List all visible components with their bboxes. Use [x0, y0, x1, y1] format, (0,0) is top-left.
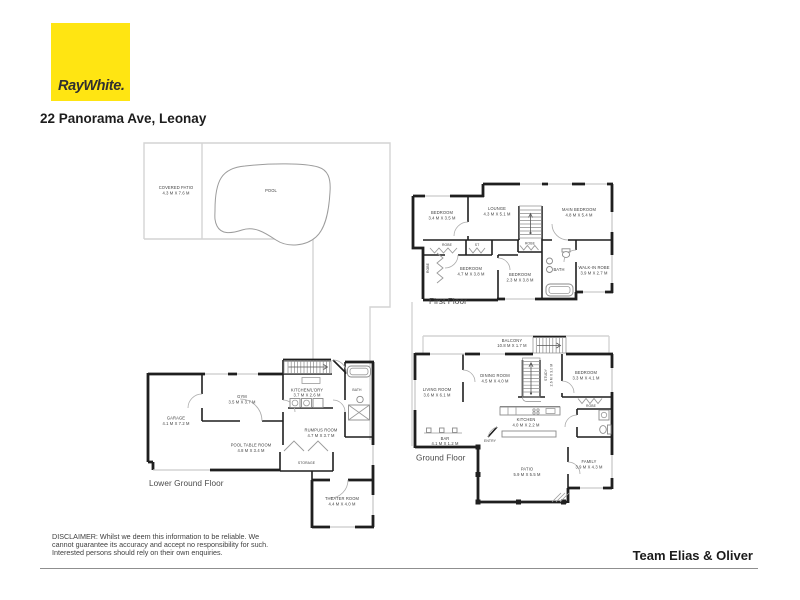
- storage-door-icons: [284, 441, 328, 451]
- staircase-ground-floor: [523, 358, 542, 402]
- room-dims-dining: 4.5 M X 4.0 M: [481, 379, 509, 384]
- basin-icons: [547, 258, 553, 273]
- first-floor-outer-walls: [413, 184, 613, 300]
- team-name: Team Elias & Oliver: [633, 548, 753, 563]
- room-label-dining: DINING ROOM: [480, 373, 510, 378]
- powder-room-icons: [599, 410, 611, 434]
- room-label-walk-in-robe: WALK-IN ROBE: [578, 265, 609, 270]
- disclaimer-text: DISCLAIMER: Whilst we deem this informat…: [52, 533, 332, 558]
- room-label-bedroom-mid: BEDROOM: [460, 266, 482, 271]
- room-label-bedroom-top: BEDROOM: [431, 210, 453, 215]
- room-label-kitchen: KITCHEN: [517, 417, 536, 422]
- room-dims-bedroom-gf: 3.3 M X 4.1 M: [572, 376, 600, 381]
- room-dims-pool-table: 4.8 M X 3.4 M: [237, 448, 265, 453]
- room-dims-study: 2.6 M X 3.0 M: [550, 364, 554, 387]
- room-dims-garage: 4.1 M X 7.2 M: [162, 421, 190, 426]
- bathtub-icon: [546, 284, 573, 296]
- room-label-living: LIVING ROOM: [423, 387, 452, 392]
- floor-label-lower-ground: Lower Ground Floor: [149, 479, 224, 488]
- room-dims-bedroom-mid: 4.7 M X 3.8 M: [457, 272, 485, 277]
- room-label-patio: PATIO: [521, 467, 533, 472]
- room-label-family: FAMILY: [582, 459, 597, 464]
- room-dims-bar: 4.1 M X 1.2 M: [431, 441, 459, 446]
- staircase-balcony: [533, 337, 566, 354]
- room-dims-gym: 3.5 M X 3.7 M: [228, 400, 256, 405]
- room-label-bedroom-small: BEDROOM: [509, 272, 531, 277]
- room-dims-bedroom-small: 2.3 M X 3.8 M: [506, 278, 534, 283]
- room-label-store: ST: [475, 243, 480, 247]
- room-label-bath-ff: BATH: [553, 267, 564, 272]
- room-dims-bedroom-top: 3.4 M X 3.5 M: [428, 216, 456, 221]
- room-label-study: STUDY: [544, 368, 548, 381]
- room-label-lounge: LOUNGE: [488, 206, 506, 211]
- floor-label-ground: Ground Floor: [416, 454, 466, 463]
- bath-fixture-icons-lower: [348, 366, 371, 420]
- room-dims-balcony: 10.8 M X 1.7 M: [497, 343, 527, 348]
- room-dims-patio: 5.9 M X 5.5 M: [513, 472, 541, 477]
- lower-ground-inner-walls: [202, 360, 373, 480]
- room-dims-rumpus: 4.7 M X 3.7 M: [307, 433, 335, 438]
- room-dims-family: 3.9 M X 4.3 M: [575, 465, 603, 470]
- room-label-bath-lg: BATH: [352, 388, 362, 392]
- staircase-lower-ground: [284, 361, 331, 374]
- lower-ground-floor-plan: GARAGE 4.1 M X 7.2 M GYM 3.5 M X 3.7 M K…: [148, 360, 374, 528]
- room-dims-walk-in-robe: 3.9 M X 2.7 M: [580, 271, 608, 276]
- room-label-pool: POOL: [265, 188, 277, 193]
- room-label-rumpus: RUMPUS ROOM: [305, 428, 338, 433]
- ground-floor-plan: BALCONY 10.8 M X 1.7 M LIVING ROOM 3.6 M…: [415, 336, 613, 505]
- door-arcs-first-floor: [445, 222, 576, 270]
- room-label-gym: GYM: [237, 394, 247, 399]
- toilet-icon: [562, 249, 570, 258]
- room-dims-kitchen: 4.0 M X 2.2 M: [512, 423, 540, 428]
- room-label-robe-side: ROBE: [426, 262, 430, 273]
- room-label-entry: ENTRY: [484, 439, 497, 443]
- room-label-covered-patio: COVERED PATIO: [159, 185, 194, 190]
- floorplan-page: RayWhite. 22 Panorama Ave, Leonay COVERE…: [0, 0, 800, 600]
- room-dims-theater: 4.4 M X 4.0 M: [328, 502, 356, 507]
- room-label-bedroom-gf: BEDROOM: [575, 370, 597, 375]
- room-dims-kitchen-laundry: 3.7 M X 2.6 M: [293, 393, 321, 398]
- room-dims-living: 3.6 M X 6.1 M: [423, 393, 451, 398]
- room-dims-covered-patio: 4.3 M X 7.6 M: [162, 191, 190, 196]
- room-label-robe-a: ROBE: [442, 243, 453, 247]
- room-label-main-bedroom: MAIN BEDROOM: [562, 207, 596, 212]
- footer-divider: [40, 568, 758, 569]
- staircase-first-floor: [520, 206, 542, 238]
- robe-rail-icon-ground: [578, 399, 602, 404]
- first-floor-plan: BEDROOM 3.4 M X 3.5 M LOUNGE 4.3 M X 5.1…: [413, 184, 613, 306]
- floor-label-first: First Floor: [429, 297, 467, 306]
- room-label-storage: STORAGE: [298, 461, 316, 465]
- room-label-robe-b: ROBE: [525, 242, 536, 246]
- room-dims-lounge: 4.3 M X 5.1 M: [483, 212, 511, 217]
- floorplan-canvas: COVERED PATIO 4.3 M X 7.6 M POOL: [0, 0, 800, 600]
- room-label-pool-table: POOL TABLE ROOM: [231, 443, 272, 448]
- room-label-garage: GARAGE: [167, 416, 185, 421]
- pool-shape: [215, 164, 330, 245]
- room-label-theater: THEATER ROOM: [325, 496, 360, 501]
- bar-counter-icon: [424, 428, 462, 433]
- room-dims-main-bedroom: 4.8 M X 5.4 M: [565, 213, 593, 218]
- disclaimer-line-3: Interested persons should rely on their …: [52, 549, 332, 557]
- room-label-robe-gf: ROBE: [586, 404, 597, 408]
